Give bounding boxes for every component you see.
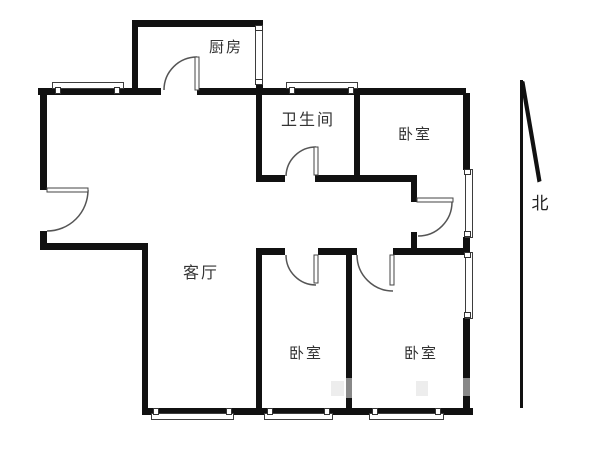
wall-top-east xyxy=(197,88,466,95)
room-label-se-bedroom: 卧室 xyxy=(404,345,438,362)
window-marker xyxy=(325,409,330,415)
wall-bathroom-bottom-west xyxy=(256,175,285,182)
north-label: 北 xyxy=(532,194,549,213)
wall-divider-living-bedroom xyxy=(256,248,262,415)
wall-ne-bedroom-step xyxy=(411,175,417,202)
wall-step-horizontal xyxy=(40,243,148,250)
window-marker xyxy=(465,170,471,175)
window-right-upper xyxy=(466,170,473,238)
north-arrow-shaft xyxy=(520,80,523,408)
window-bottom-middle-bedroom xyxy=(265,414,333,420)
floor-plan-canvas: 厨房 卫生间 卧室 客厅 卧室 卧室 北 xyxy=(0,0,600,450)
watermark-smudge xyxy=(331,381,344,396)
door-leaf-bathroom xyxy=(314,147,318,175)
room-label-living-room: 客厅 xyxy=(183,264,219,282)
wall-hall-south-east xyxy=(393,248,470,255)
wall-ne-bedroom-bottom xyxy=(354,175,417,182)
watermark-artifact xyxy=(331,378,471,398)
wall-bathroom-bottom-east xyxy=(315,175,360,182)
window-marker xyxy=(154,409,159,415)
window-top-bathroom xyxy=(287,83,358,89)
room-label-kitchen: 厨房 xyxy=(209,39,243,56)
door-leaf-kitchen xyxy=(195,57,199,90)
window-marker xyxy=(290,88,295,94)
door-arc-middle-bedroom xyxy=(286,255,316,285)
watermark-smudge xyxy=(416,381,428,396)
wall-left-bottom-vertical xyxy=(142,243,148,415)
window-marker xyxy=(227,409,232,415)
wall-bathroom-right-divider xyxy=(354,93,360,182)
window-marker xyxy=(465,313,471,318)
door-arc-entry xyxy=(47,190,88,231)
window-bottom-se-bedroom xyxy=(370,414,444,420)
window-kitchen-east xyxy=(256,30,263,83)
window-marker xyxy=(256,80,263,85)
wall-right-lower xyxy=(463,318,470,415)
window-top-living xyxy=(53,83,124,89)
window-marker xyxy=(373,409,378,415)
window-marker xyxy=(56,88,61,94)
floor-plan-drawing: 厨房 卫生间 卧室 客厅 卧室 卧室 北 xyxy=(0,0,600,450)
window-marker xyxy=(268,409,273,415)
room-label-bathroom: 卫生间 xyxy=(281,111,335,129)
door-leaf-entry xyxy=(47,188,88,192)
wall-left-upper xyxy=(40,90,47,190)
room-label-ne-bedroom: 卧室 xyxy=(398,126,432,143)
wall-bathroom-left xyxy=(256,93,262,182)
window-marker xyxy=(436,409,441,415)
door-leaf-se-bedroom xyxy=(390,255,394,285)
room-label-middle-bedroom: 卧室 xyxy=(289,345,323,362)
wall-kitchen-left xyxy=(132,20,138,93)
window-right-lower xyxy=(466,253,473,319)
door-leaf-middle-bedroom xyxy=(314,255,318,283)
window-marker xyxy=(115,88,120,94)
north-arrow-head xyxy=(520,80,542,183)
wall-right-upper xyxy=(463,93,470,170)
door-arc-se-bedroom xyxy=(357,255,393,291)
door-leaf-ne-bedroom xyxy=(417,198,453,202)
wall-kitchen-top xyxy=(132,20,263,27)
north-arrow: 北 xyxy=(520,80,549,408)
door-arc-ne-bedroom xyxy=(418,202,452,236)
window-marker xyxy=(256,26,263,31)
door-arc-bathroom xyxy=(286,147,316,176)
watermark-smudge xyxy=(344,378,354,398)
window-marker xyxy=(465,253,471,258)
window-bottom-living xyxy=(152,414,234,420)
watermark-smudge xyxy=(463,378,471,396)
door-arc-kitchen xyxy=(164,57,197,90)
window-marker xyxy=(465,232,471,237)
window-marker xyxy=(349,88,354,94)
